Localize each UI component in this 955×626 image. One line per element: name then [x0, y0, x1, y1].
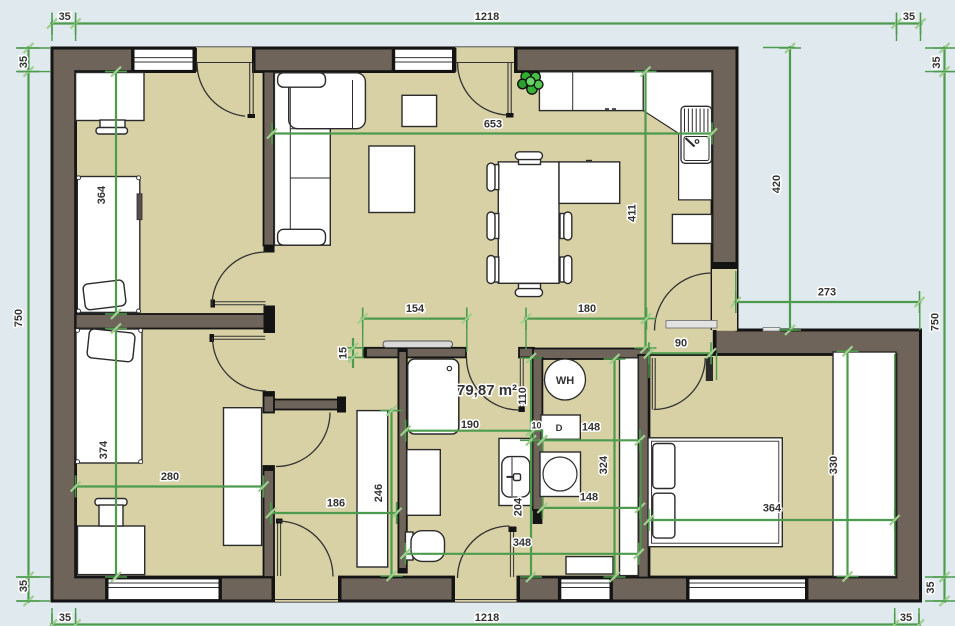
svg-text:1218: 1218	[475, 11, 499, 23]
svg-text:35: 35	[59, 11, 71, 23]
svg-text:348: 348	[513, 537, 531, 549]
svg-text:35: 35	[931, 56, 943, 68]
svg-text:148: 148	[580, 492, 598, 504]
svg-text:35: 35	[18, 56, 30, 68]
svg-text:750: 750	[930, 313, 942, 331]
svg-text:280: 280	[161, 471, 179, 483]
svg-text:653: 653	[484, 119, 502, 131]
svg-text:154: 154	[406, 303, 425, 315]
svg-text:190: 190	[461, 419, 479, 431]
svg-text:330: 330	[828, 456, 840, 474]
svg-text:D: D	[556, 423, 563, 434]
svg-text:411: 411	[627, 204, 639, 222]
svg-text:180: 180	[578, 303, 596, 315]
svg-text:204: 204	[513, 497, 525, 516]
svg-text:273: 273	[818, 287, 836, 299]
svg-text:750: 750	[13, 309, 25, 327]
svg-text:246: 246	[373, 484, 385, 502]
svg-text:WH: WH	[556, 375, 574, 387]
svg-text:10: 10	[531, 421, 541, 431]
svg-text:374: 374	[98, 440, 110, 459]
svg-text:35: 35	[925, 581, 937, 593]
svg-text:90: 90	[675, 338, 687, 350]
svg-text:35: 35	[900, 612, 912, 624]
svg-text:1218: 1218	[475, 612, 499, 624]
svg-text:148: 148	[582, 422, 600, 434]
svg-text:420: 420	[771, 175, 783, 193]
svg-text:35: 35	[18, 580, 30, 592]
svg-text:79,87 m²: 79,87 m²	[457, 382, 517, 399]
svg-text:110: 110	[517, 387, 529, 405]
svg-text:35: 35	[903, 11, 915, 23]
svg-text:15: 15	[338, 347, 350, 359]
svg-text:324: 324	[598, 455, 610, 474]
svg-text:364: 364	[96, 185, 108, 204]
svg-text:35: 35	[59, 612, 71, 624]
svg-text:186: 186	[327, 498, 345, 510]
svg-text:364: 364	[763, 503, 782, 515]
